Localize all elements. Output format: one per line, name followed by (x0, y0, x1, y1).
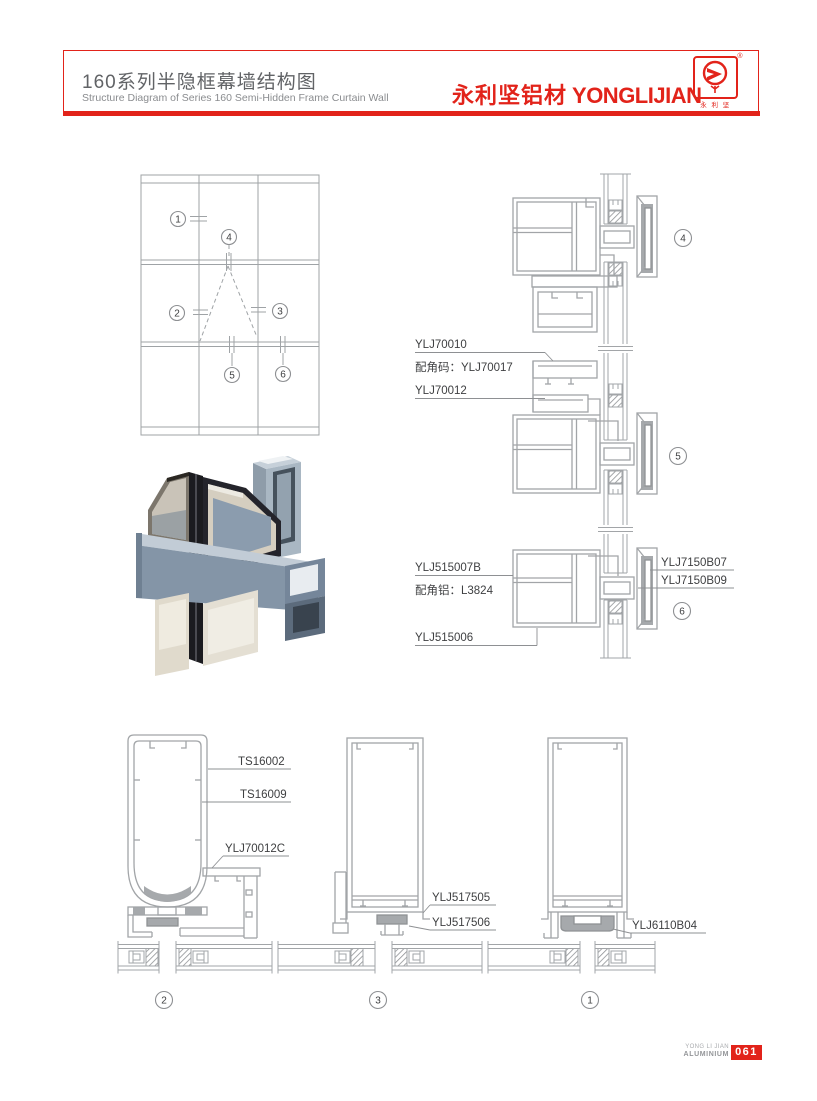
label-ylj70012: YLJ70012 (415, 385, 467, 397)
section-detail-5 (513, 361, 657, 494)
glass-strip (278, 941, 375, 974)
label-ts16002: TS16002 (238, 756, 285, 768)
profile-tube (128, 735, 207, 937)
callout-profile-3-number: 3 (375, 996, 381, 1007)
callout-profile-2-number: 2 (161, 996, 167, 1007)
callout-1-number: 1 (175, 215, 181, 226)
glass-strip (595, 941, 655, 974)
label-ylj515007b: YLJ515007B (415, 562, 481, 574)
profile-right (541, 738, 634, 938)
label-ylj7150b09: YLJ7150B09 (661, 575, 727, 587)
label-corner-alu: 配角铝：L3824 (415, 583, 494, 597)
elevation-diagram (141, 175, 319, 435)
callout-profile-1-number: 1 (587, 996, 593, 1007)
section-detail-4 (513, 196, 657, 332)
section-detail-6 (513, 548, 657, 629)
label-ylj7150b07: YLJ7150B07 (661, 557, 727, 569)
glass-strip (488, 941, 580, 974)
footer-brand: YONG LI JIAN ALUMINIUM (629, 1044, 729, 1060)
vent-opening-dashes (200, 245, 257, 341)
label-ylj517505: YLJ517505 (432, 892, 490, 904)
label-ylj70010: YLJ70010 (415, 339, 467, 351)
label-ylj6110b04: YLJ6110B04 (632, 920, 698, 932)
render-3d (136, 456, 325, 676)
label-ts16009: TS16009 (240, 789, 287, 801)
glass-strips (118, 941, 655, 974)
callout-6-number: 6 (280, 370, 286, 381)
callout-detail-4-number: 4 (680, 234, 686, 245)
callout-detail-6-number: 6 (679, 607, 685, 618)
label-ylj70012c: YLJ70012C (225, 843, 285, 855)
section-details (513, 174, 657, 658)
structure-drawings: YLJ70010 配角码：YLJ70017 YLJ70012 YLJ515007… (0, 0, 817, 1101)
profile-middle (333, 738, 430, 935)
page-number-badge: 061 (731, 1045, 762, 1060)
glass-strip (176, 941, 272, 974)
callout-4-number: 4 (226, 233, 232, 244)
glass-strip (118, 941, 159, 974)
bottom-profiles (128, 735, 634, 938)
label-ylj515006: YLJ515006 (415, 632, 473, 644)
callout-3-number: 3 (277, 307, 283, 318)
footer-brand-line2: ALUMINIUM (629, 1051, 729, 1059)
callout-2-number: 2 (174, 309, 180, 320)
glass-unit-vertical (598, 174, 633, 658)
footer-brand-line1: YONG LI JIAN (629, 1044, 729, 1051)
section-cut-ticks (190, 217, 285, 367)
callout-5-number: 5 (229, 371, 235, 382)
label-ylj517506: YLJ517506 (432, 917, 490, 929)
profile-bracket-70012c (180, 868, 260, 938)
label-corner-code: 配角码：YLJ70017 (415, 361, 513, 374)
callout-detail-5-number: 5 (675, 452, 681, 463)
catalog-page: 160系列半隐框幕墙结构图 Structure Diagram of Serie… (0, 0, 817, 1101)
glass-strip (392, 941, 482, 974)
